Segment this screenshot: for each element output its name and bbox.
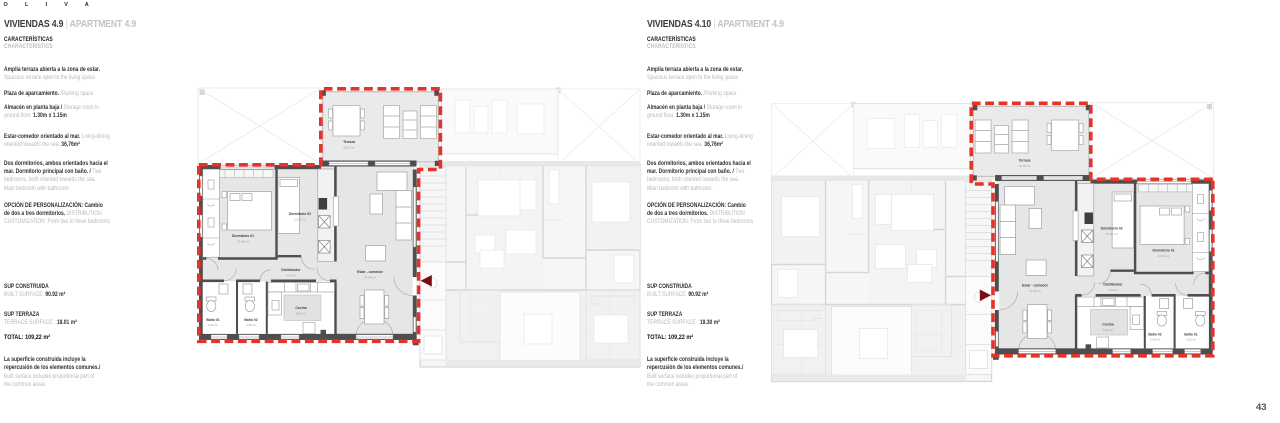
svg-text:Baño 01: Baño 01: [206, 318, 219, 322]
svg-text:13.46 m²: 13.46 m²: [237, 240, 249, 244]
svg-text:Baño 02: Baño 02: [244, 318, 257, 322]
svg-text:Dormitorio 02: Dormitorio 02: [1101, 227, 1123, 231]
svg-text:Estar - comedor: Estar - comedor: [1022, 284, 1048, 288]
svg-text:10.36 m²: 10.36 m²: [1106, 232, 1118, 236]
svg-text:Estar - comedor: Estar - comedor: [357, 270, 383, 274]
svg-text:Distribuidor: Distribuidor: [281, 268, 301, 272]
svg-text:Dormitorio 01: Dormitorio 01: [1152, 249, 1174, 253]
svg-text:10.36 m²: 10.36 m²: [294, 218, 306, 222]
svg-text:Cocina: Cocina: [1102, 323, 1113, 327]
svg-text:Baño 02: Baño 02: [1148, 333, 1161, 337]
svg-text:Dormitorio 02: Dormitorio 02: [289, 212, 311, 216]
svg-text:Cocina: Cocina: [295, 306, 306, 310]
svg-text:3.52 m²: 3.52 m²: [1186, 338, 1196, 342]
svg-text:4.52 m²: 4.52 m²: [1108, 288, 1118, 292]
svg-text:3.52 m²: 3.52 m²: [208, 323, 218, 327]
svg-text:3.48 m²: 3.48 m²: [1150, 338, 1160, 342]
svg-text:Dormitorio 01: Dormitorio 01: [232, 234, 254, 238]
svg-text:Distribuidor: Distribuidor: [1103, 283, 1123, 287]
svg-text:3.48 m²: 3.48 m²: [246, 323, 256, 327]
svg-text:Terraza: Terraza: [1019, 159, 1031, 163]
svg-text:37.96 m²: 37.96 m²: [364, 276, 376, 280]
svg-text:6.89 m²: 6.89 m²: [1103, 328, 1113, 332]
svg-text:Baño 01: Baño 01: [1184, 333, 1197, 337]
svg-text:4.52 m²: 4.52 m²: [286, 274, 296, 278]
svg-text:6.89 m²: 6.89 m²: [296, 312, 306, 316]
svg-text:19.30 m²: 19.30 m²: [1019, 164, 1031, 168]
svg-text:13.46 m²: 13.46 m²: [1158, 254, 1170, 258]
svg-text:37.96 m²: 37.96 m²: [1029, 289, 1041, 293]
svg-text:Terraza: Terraza: [343, 140, 355, 144]
svg-text:18.01 m²: 18.01 m²: [343, 146, 355, 150]
